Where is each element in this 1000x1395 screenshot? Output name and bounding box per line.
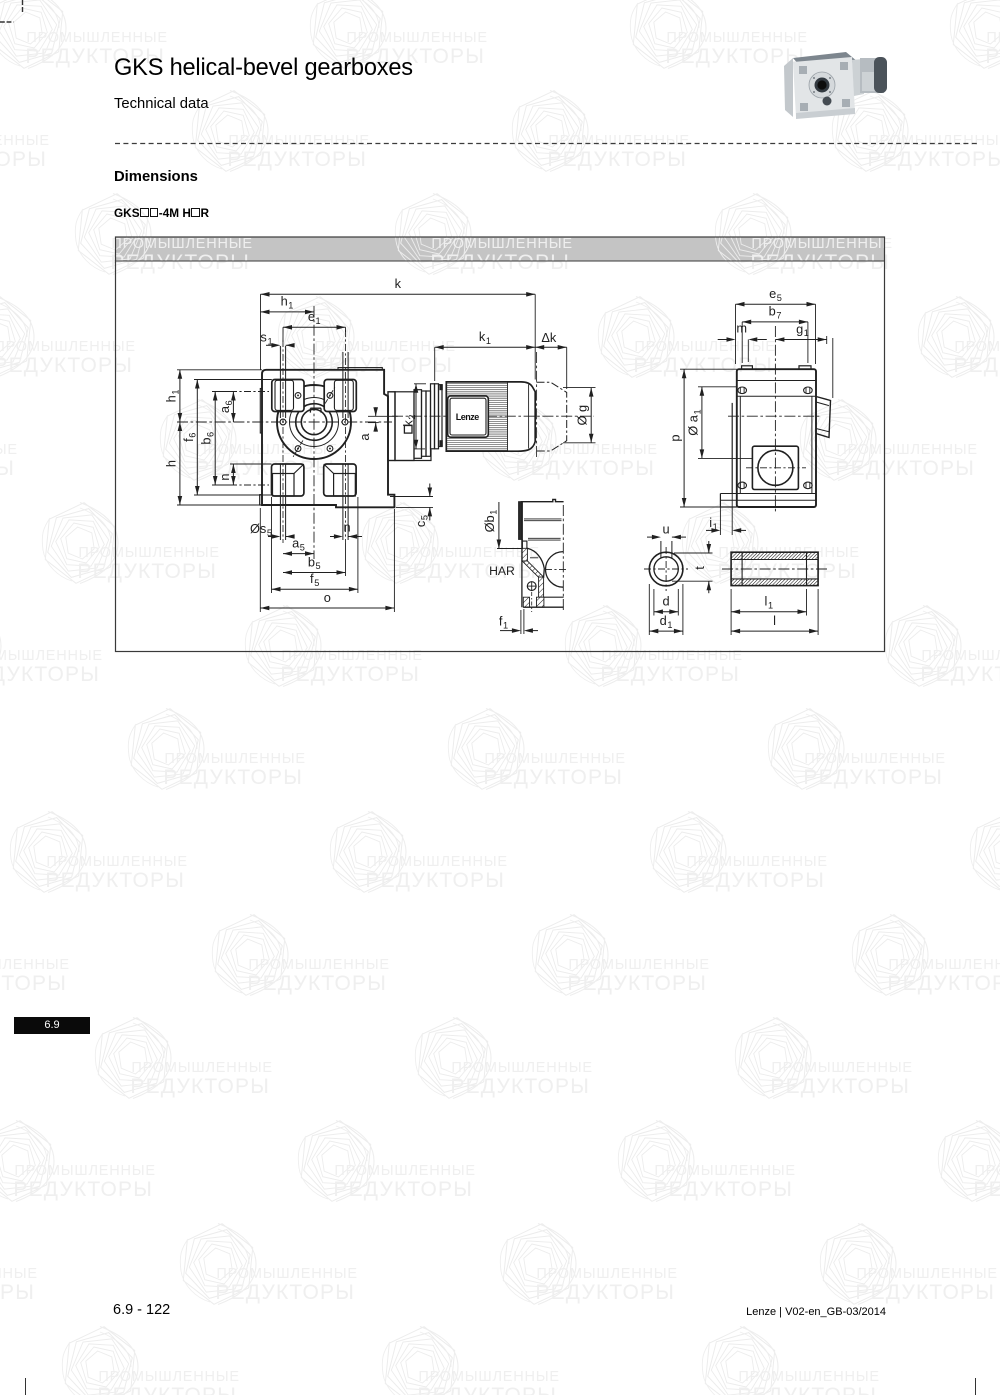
svg-text:f1: f1 — [499, 614, 508, 631]
svg-text:t: t — [692, 566, 707, 570]
svg-text:o: o — [324, 590, 331, 605]
svg-text:b6: b6 — [199, 432, 216, 445]
svg-text:HAR: HAR — [489, 564, 515, 578]
svg-text:h1: h1 — [281, 294, 294, 311]
svg-text:f6: f6 — [181, 433, 198, 442]
svg-text:l: l — [773, 613, 776, 628]
svg-text:h: h — [163, 460, 178, 467]
svg-text:l1: l1 — [765, 594, 774, 611]
svg-text:f5: f5 — [310, 571, 319, 588]
svg-text:s1: s1 — [260, 330, 272, 347]
svg-text:e1: e1 — [308, 309, 321, 326]
svg-text:Ø a1: Ø a1 — [685, 409, 702, 435]
svg-text:b7: b7 — [769, 304, 782, 321]
svg-text:n: n — [343, 520, 350, 535]
svg-text:Øs5: Øs5 — [250, 521, 272, 538]
svg-text:Øb1: Øb1 — [482, 510, 499, 533]
svg-text:e5: e5 — [769, 286, 782, 303]
svg-text:u: u — [662, 522, 669, 537]
svg-text:Ø g: Ø g — [575, 405, 590, 426]
svg-text:Δk: Δk — [541, 330, 557, 345]
svg-text:g1: g1 — [796, 321, 809, 338]
svg-text:b5: b5 — [308, 554, 321, 571]
svg-text:c5: c5 — [413, 515, 430, 527]
svg-text:a6: a6 — [217, 400, 234, 413]
svg-text:a: a — [357, 433, 372, 441]
svg-text:h1: h1 — [163, 389, 180, 402]
svg-text:p: p — [668, 435, 683, 442]
svg-text:n: n — [217, 473, 232, 480]
svg-text:d: d — [663, 594, 670, 609]
svg-text:Lenze: Lenze — [456, 412, 480, 422]
svg-text:k1: k1 — [479, 329, 491, 346]
svg-text:k: k — [395, 276, 402, 291]
svg-text:d1: d1 — [660, 613, 673, 630]
svg-text:a5: a5 — [292, 535, 305, 552]
svg-text:m: m — [736, 321, 747, 336]
